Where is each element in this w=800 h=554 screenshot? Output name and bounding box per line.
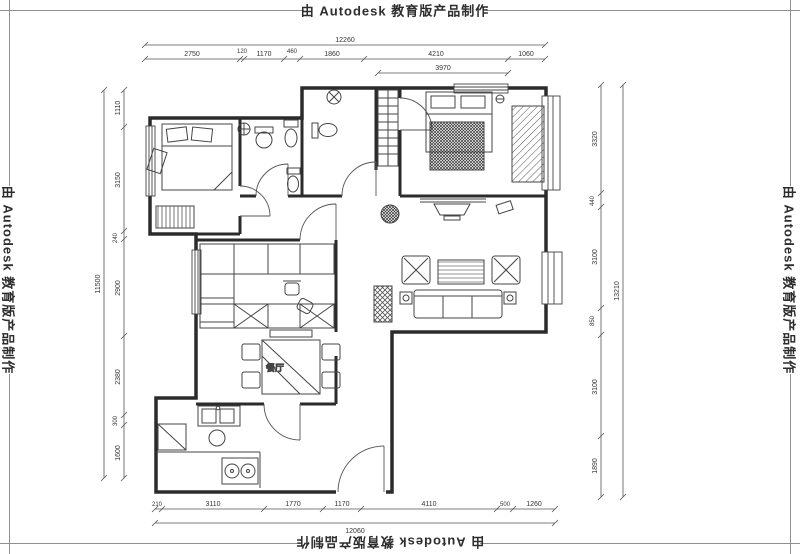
master-bedroom-furniture: [426, 92, 544, 182]
office-chair-icon: [283, 281, 301, 295]
door-kitchen: [264, 404, 300, 440]
door-bath2: [342, 162, 376, 196]
bay-window-living: [542, 252, 562, 304]
pillow-icon: [166, 127, 187, 142]
dim-label: 1170: [334, 501, 349, 508]
tv-icon: [434, 204, 470, 215]
column-shaft: [374, 286, 392, 322]
dim-label: 2750: [184, 51, 200, 58]
chair-icon: [242, 372, 260, 388]
dim-label: 850: [590, 315, 596, 326]
plant-icon: [381, 205, 399, 223]
sink-icon: [255, 127, 273, 148]
pillow-icon: [191, 127, 212, 142]
dining-room-label: 餐厅: [266, 362, 284, 373]
dim-label: 1890: [592, 458, 599, 474]
armchair-left: [402, 256, 430, 284]
toilet-icon: [284, 120, 298, 147]
dim-label: 3100: [592, 249, 599, 265]
dresser-icon: [156, 206, 194, 228]
pillow-icon: [431, 96, 455, 108]
sideboard-icon: [270, 330, 312, 337]
tv-stand: [444, 216, 460, 220]
interior-walls: [196, 88, 546, 404]
bay-window-master: [542, 96, 560, 190]
bidet-icon: [287, 168, 300, 192]
kitchen-sink-icon: [198, 406, 240, 426]
decor-icon: [496, 201, 513, 214]
toilet-icon: [312, 123, 337, 138]
dim-label: 1770: [285, 501, 301, 508]
wardrobe-icon: [512, 106, 544, 182]
dim-label: 1860: [324, 51, 340, 58]
dim-label: 440: [590, 195, 596, 206]
low-closet: [200, 304, 334, 328]
living-room-furniture: [374, 199, 520, 322]
door-study: [300, 204, 336, 240]
basin-icon: [209, 430, 225, 446]
exhaust-fan-icon: [327, 90, 341, 104]
dim-label: 4110: [421, 501, 436, 508]
dim-label: 13210: [614, 281, 621, 301]
bedroom-secondary-furniture: [147, 123, 250, 228]
bedside-lamp-icon: [496, 95, 504, 103]
dim-label: 2900: [115, 280, 122, 296]
dim-label: 300: [113, 415, 119, 426]
floor-plan: 餐厅 12260: [0, 0, 800, 554]
blanket-fold: [162, 146, 232, 190]
door-bath1: [256, 164, 288, 196]
dim-label: 500: [500, 502, 511, 508]
chair-icon: [242, 344, 260, 360]
ceiling-lamp-icon: [238, 123, 250, 135]
bathroom-2-fixtures: [312, 90, 341, 138]
dining-furniture: 餐厅: [242, 330, 340, 394]
dim-label: 12060: [345, 528, 365, 535]
fridge-diagonal: [158, 424, 186, 450]
sofa-icon: [400, 290, 516, 318]
dim-label: 3150: [115, 172, 122, 188]
window-bedroom-left: [146, 126, 155, 196]
dim-label: 1170: [256, 51, 271, 58]
tv-wall: [420, 199, 486, 202]
bed-secondary: [162, 124, 232, 190]
door-entry: [338, 446, 384, 492]
dim-label: 1260: [526, 501, 542, 508]
dim-line-bottom-overall: [152, 520, 558, 526]
dim-label: 3100: [592, 379, 599, 395]
kitchen-furniture: [156, 406, 260, 488]
dim-label: 3970: [435, 65, 451, 72]
dim-label: 12260: [335, 37, 355, 44]
armchair-right: [492, 256, 520, 284]
counter-edge: [156, 452, 260, 488]
dim-label: 460: [287, 49, 298, 55]
dim-label: 1060: [518, 51, 534, 58]
dim-label: 2380: [115, 369, 122, 385]
stove-icon: [222, 458, 258, 484]
door-bedroom: [240, 186, 270, 216]
dim-label: 3110: [205, 501, 220, 508]
dim-label: 4210: [428, 51, 444, 58]
dim-label: 240: [113, 232, 119, 243]
dim-label: 210: [152, 502, 163, 508]
dim-label: 120: [237, 49, 248, 55]
desk-cabinets: [200, 244, 334, 322]
entry-opening: [336, 488, 386, 496]
dim-line-top-segments: [142, 56, 548, 62]
dim-label: 3320: [592, 131, 599, 147]
bathroom-1-fixtures: [255, 120, 300, 192]
pillow-icon: [461, 96, 485, 108]
dim-label: 1110: [115, 101, 122, 116]
dim-label: 1600: [115, 445, 122, 461]
rug-icon: [430, 122, 484, 170]
dim-label: 11500: [95, 274, 102, 293]
hall-closet: [378, 90, 398, 166]
study-furniture: [200, 244, 334, 328]
coffee-table-icon: [438, 260, 484, 284]
